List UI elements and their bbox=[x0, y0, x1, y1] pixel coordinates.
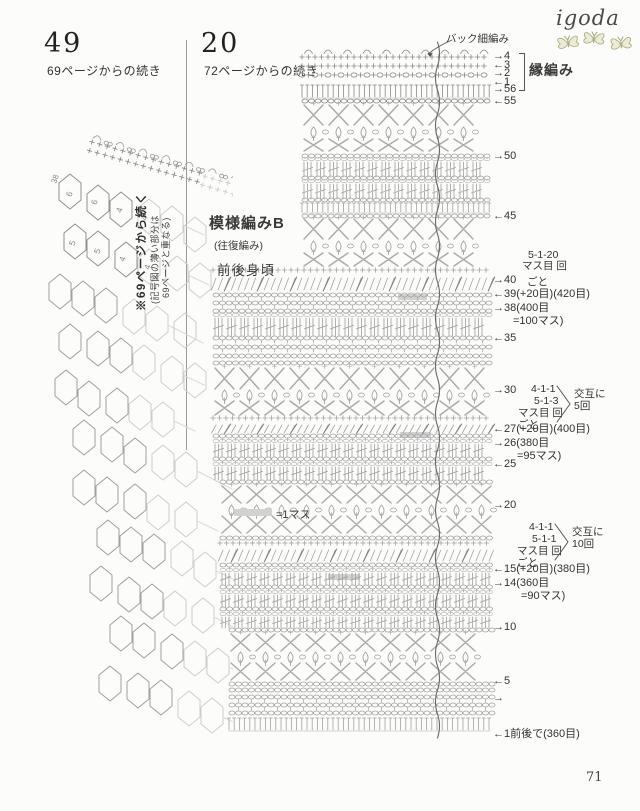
crochet-symbol-chart bbox=[195, 28, 505, 750]
svg-text:4: 4 bbox=[117, 255, 128, 263]
row-marker: ←45 bbox=[493, 211, 516, 222]
legend-label: =1マス bbox=[276, 506, 311, 522]
row-marker: →56 bbox=[493, 84, 516, 95]
row-marker: →30 bbox=[493, 385, 516, 396]
row-arrow-icon: → bbox=[493, 693, 503, 704]
row-arrow-icon: ← bbox=[493, 289, 503, 300]
row-arrow-icon: ← bbox=[493, 564, 503, 575]
row-arrow-icon: → bbox=[493, 578, 503, 589]
row-marker: →10 bbox=[493, 622, 516, 633]
page-number: 71 bbox=[586, 770, 603, 785]
row-number-label: 38(400目 bbox=[504, 302, 549, 314]
row-marker: →26(380目 bbox=[493, 438, 549, 449]
row-arrow-icon: → bbox=[493, 500, 503, 511]
svg-text:6: 6 bbox=[64, 190, 75, 198]
row-arrow-icon: ← bbox=[493, 211, 503, 222]
row-marker: ←35 bbox=[493, 333, 516, 344]
increase-note-line: 交互に bbox=[572, 527, 604, 538]
row-number-label: 26(380目 bbox=[504, 437, 549, 449]
increase-note-line: ごと bbox=[517, 558, 538, 569]
row-arrow-icon: ← bbox=[493, 676, 503, 687]
row-number-label: =100マス) bbox=[513, 315, 563, 327]
svg-text:5: 5 bbox=[92, 247, 103, 255]
row-marker: =95マス) bbox=[516, 451, 561, 462]
row-marker: ←27(+20目)(400目) bbox=[493, 424, 590, 435]
increase-note-line: 4-1-1 bbox=[529, 522, 554, 533]
brace-icon bbox=[556, 385, 574, 423]
increase-note-line: 5-1-3 bbox=[534, 396, 559, 407]
row-marker: ←39(+20目)(420目) bbox=[493, 289, 590, 300]
row-number-label: =95マス) bbox=[517, 450, 561, 462]
vertical-note-main: ※69ページから続く bbox=[133, 191, 149, 311]
row-arrow-icon: → bbox=[493, 438, 503, 449]
row-marker: →40 bbox=[493, 275, 516, 286]
row-arrow-icon: ← bbox=[493, 96, 503, 107]
edge-rows-bracket bbox=[519, 53, 525, 91]
increase-note-line: 5-1-20 bbox=[528, 250, 558, 261]
pattern-label: 模様編みB bbox=[209, 212, 285, 233]
left-continued-label: 69ページからの続き bbox=[47, 62, 161, 79]
row-number-label: 27(+20目)(400目) bbox=[504, 423, 590, 435]
increase-note-line: ごと bbox=[518, 420, 539, 431]
row-marker: →20 bbox=[493, 500, 516, 511]
row-marker: ←1前後で(360目) bbox=[493, 729, 580, 740]
row-marker: ←5 bbox=[493, 676, 510, 687]
row-number-label: =90マス) bbox=[521, 590, 565, 602]
increase-note-line: 5-1-1 bbox=[532, 534, 557, 545]
row-arrow-icon: → bbox=[493, 275, 503, 286]
row-arrow-icon: → bbox=[493, 385, 503, 396]
row-marker: →50 bbox=[493, 151, 516, 162]
row-number-label: 30 bbox=[504, 384, 516, 396]
row-arrow-icon: ← bbox=[493, 459, 503, 470]
row-arrow-icon: → bbox=[493, 303, 503, 314]
edge-label: 縁編み bbox=[529, 60, 574, 80]
pattern-sub-label: (往復編み) bbox=[214, 238, 263, 253]
row-number-label: 45 bbox=[504, 210, 516, 222]
row-number-label: 39(+20目)(420目) bbox=[504, 288, 590, 300]
row-arrow-icon: ← bbox=[493, 424, 503, 435]
row-number-label: 35 bbox=[504, 332, 516, 344]
row-arrow-icon: → bbox=[493, 151, 503, 162]
row-marker: =100マス) bbox=[512, 316, 563, 327]
row-number-label: 55 bbox=[504, 95, 516, 107]
increase-note-line: ごと bbox=[527, 277, 548, 288]
row-marker: →38(400目 bbox=[493, 303, 549, 314]
row-number-label: 20 bbox=[504, 499, 516, 511]
scan-page: 49 69ページからの続き 20 72ページからの続き igoda 664455… bbox=[0, 0, 640, 811]
row-arrow-icon: → bbox=[493, 84, 503, 95]
increase-note-line: 10回 bbox=[572, 539, 594, 550]
increase-note-line: マス目 回 bbox=[522, 261, 567, 272]
row-marker: → bbox=[493, 693, 504, 704]
row-number-label: 56 bbox=[504, 83, 516, 95]
increase-note-line: 5回 bbox=[574, 401, 590, 412]
row-number-label: 25 bbox=[504, 458, 516, 470]
row-number-label: 14(360目 bbox=[504, 577, 549, 589]
back-sc-label: バック細編み bbox=[446, 31, 509, 46]
row-marker: ←15(+20目)(380目) bbox=[493, 564, 590, 575]
vertical-note-sub2: 69ページと重なる) bbox=[159, 217, 172, 298]
row-arrow-icon: ← bbox=[493, 333, 503, 344]
svg-text:5: 5 bbox=[67, 239, 78, 247]
row-marker: →14(360目 bbox=[493, 578, 549, 589]
svg-text:6: 6 bbox=[89, 198, 100, 206]
row-marker: =90マス) bbox=[520, 591, 565, 602]
row-arrow-icon: ← bbox=[493, 729, 503, 740]
row-number-label: 50 bbox=[504, 150, 516, 162]
row-number-label: 10 bbox=[504, 621, 516, 633]
row-marker: ←25 bbox=[493, 459, 516, 470]
increase-note-line: 交互に bbox=[574, 389, 606, 400]
legend-swatch bbox=[234, 509, 272, 516]
body-label: 前後身頃 bbox=[217, 259, 275, 279]
brace-icon bbox=[554, 523, 572, 561]
row-marker: ←55 bbox=[493, 96, 516, 107]
row-arrow-icon: → bbox=[493, 622, 503, 633]
svg-text:4: 4 bbox=[114, 206, 125, 214]
increase-note-line: 4-1-1 bbox=[531, 384, 556, 395]
left-item-number: 49 bbox=[44, 28, 82, 59]
row-number-label: 40 bbox=[504, 274, 516, 286]
row-number-label: 1前後で(360目) bbox=[504, 728, 580, 740]
row-number-label: 5 bbox=[504, 675, 510, 687]
